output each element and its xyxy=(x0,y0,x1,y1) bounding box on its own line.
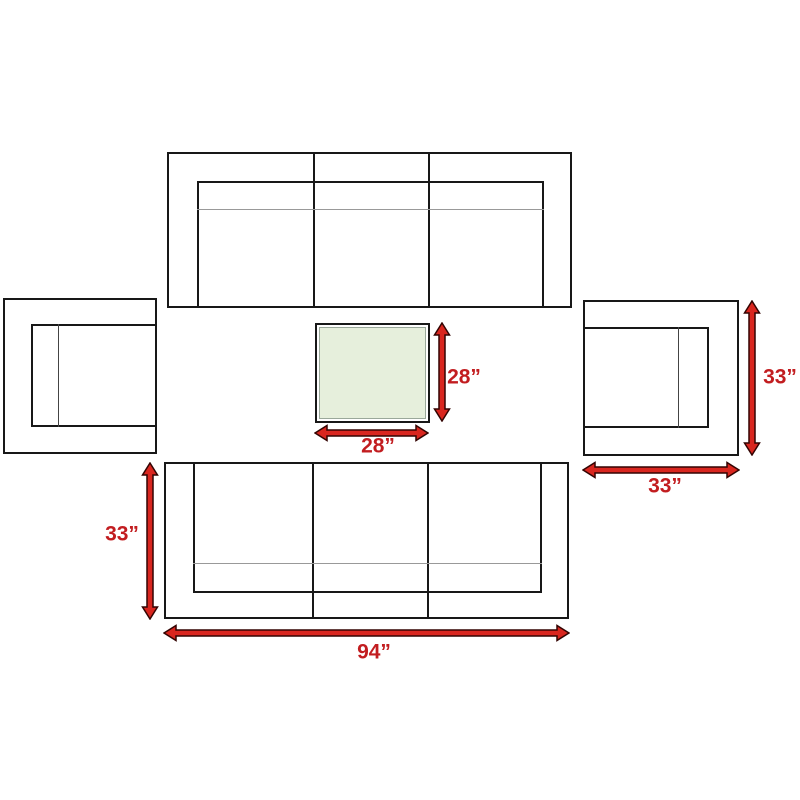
sofa-bottom-cushion-line xyxy=(193,563,542,564)
armchair-left-cushion-line xyxy=(58,324,59,427)
coffee-table-glass-top xyxy=(319,327,426,419)
armchair-right-outline xyxy=(583,300,739,456)
sofa-top-seat-area xyxy=(197,181,544,306)
sofa-top-cushion-line xyxy=(197,209,544,210)
sofa-width-dimension-arrow xyxy=(163,624,570,642)
armchair-depth-dimension-arrow xyxy=(743,300,761,456)
sofa-width-dimension-label: 94” xyxy=(357,642,391,663)
armchair-width-dimension-label: 33” xyxy=(648,476,682,497)
table-width-dimension-label: 28” xyxy=(361,436,395,457)
coffee-table-outline xyxy=(315,323,430,423)
sofa-depth-dimension-label: 33” xyxy=(105,524,139,545)
armchair-left-outline xyxy=(3,298,157,454)
armchair-left-seat-area xyxy=(31,324,155,427)
sofa-top-outline xyxy=(167,152,572,308)
armchair-depth-dimension-label: 33” xyxy=(763,367,797,388)
sofa-depth-dimension-arrow xyxy=(141,462,159,620)
armchair-right-seat-area xyxy=(585,327,709,428)
table-height-dimension-label: 28” xyxy=(447,367,481,388)
sofa-bottom-outline xyxy=(164,462,569,619)
furniture-dimension-diagram: 28” 28” 33” 33” 33” 94” xyxy=(0,0,800,800)
armchair-right-cushion-line xyxy=(678,327,679,428)
sofa-bottom-seat-area xyxy=(193,464,542,593)
